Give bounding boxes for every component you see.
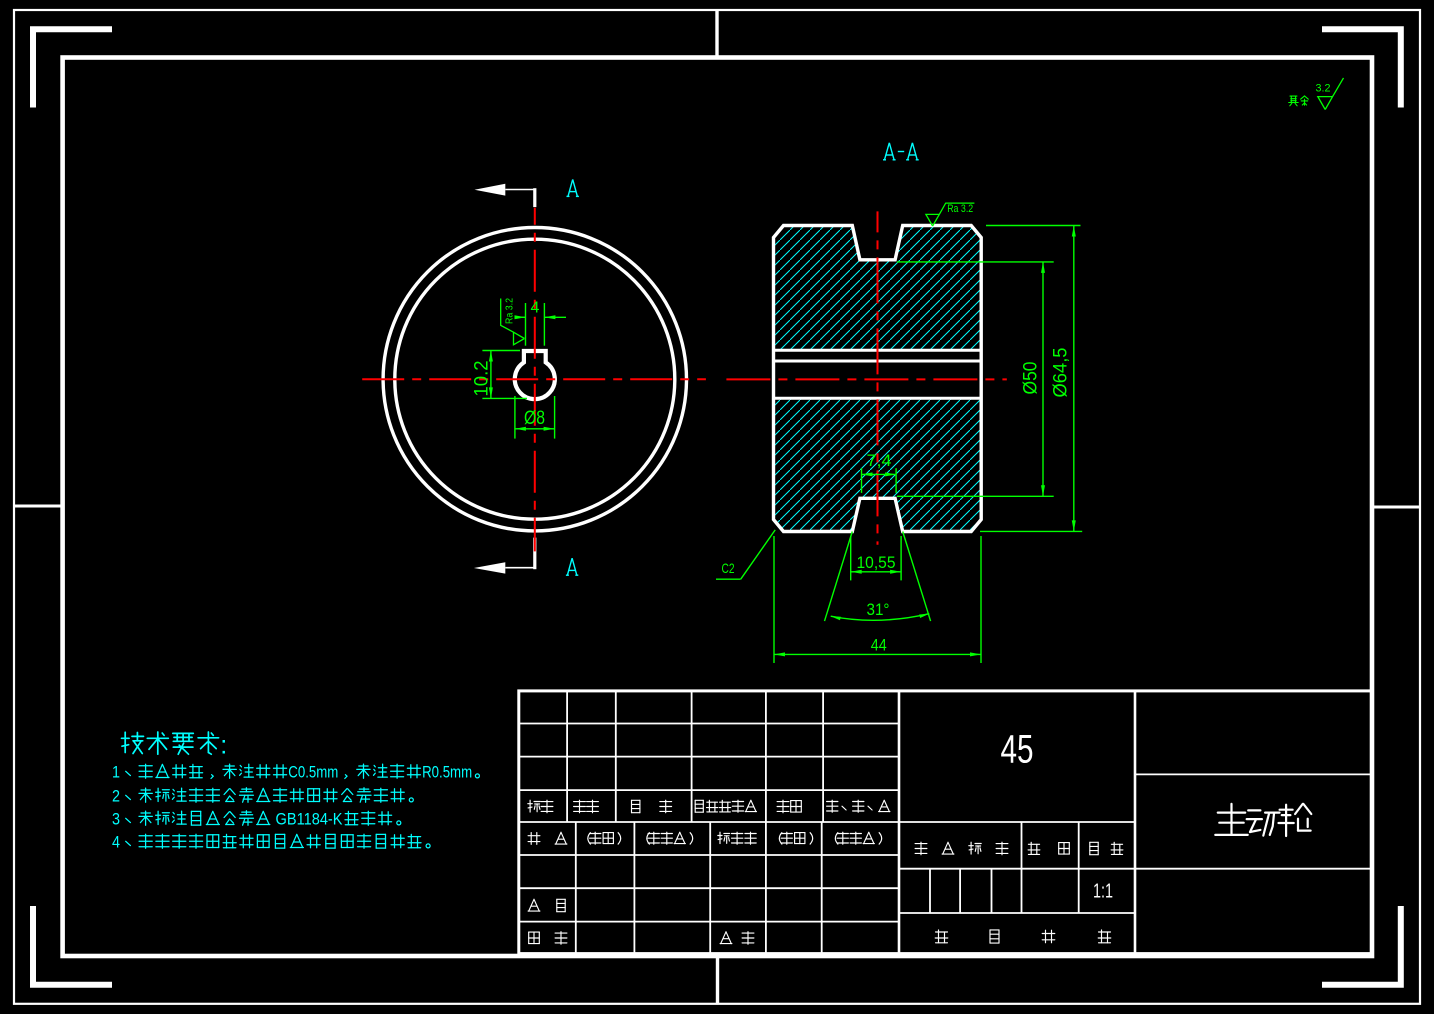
svg-text::: : bbox=[220, 729, 227, 759]
svg-text:1:1: 1:1 bbox=[1093, 881, 1113, 903]
svg-text:C0.5mm: C0.5mm bbox=[288, 764, 338, 782]
svg-text:2: 2 bbox=[112, 788, 120, 806]
svg-text:Ra 3.2: Ra 3.2 bbox=[947, 203, 973, 215]
svg-text:Ø64,5: Ø64,5 bbox=[1051, 348, 1072, 398]
svg-text:GB1184-K: GB1184-K bbox=[272, 811, 343, 829]
svg-text:4: 4 bbox=[112, 834, 120, 852]
svg-text:10,55: 10,55 bbox=[857, 553, 896, 572]
svg-text:7,4: 7,4 bbox=[867, 451, 892, 470]
svg-text:Ø8: Ø8 bbox=[524, 408, 545, 429]
svg-text:1: 1 bbox=[112, 764, 120, 782]
svg-text:Ra 3.2: Ra 3.2 bbox=[503, 298, 515, 324]
svg-text:4: 4 bbox=[531, 300, 540, 317]
svg-text:3.2: 3.2 bbox=[1316, 83, 1331, 95]
svg-text:C2: C2 bbox=[722, 560, 735, 576]
svg-text:R0.5mm: R0.5mm bbox=[422, 764, 472, 782]
svg-text:44: 44 bbox=[871, 636, 887, 655]
svg-text:10.2: 10.2 bbox=[472, 361, 493, 397]
svg-text:Ø50: Ø50 bbox=[1021, 362, 1042, 395]
svg-text:3: 3 bbox=[112, 811, 120, 829]
svg-text:45: 45 bbox=[1001, 728, 1034, 772]
svg-text:31°: 31° bbox=[867, 600, 890, 619]
